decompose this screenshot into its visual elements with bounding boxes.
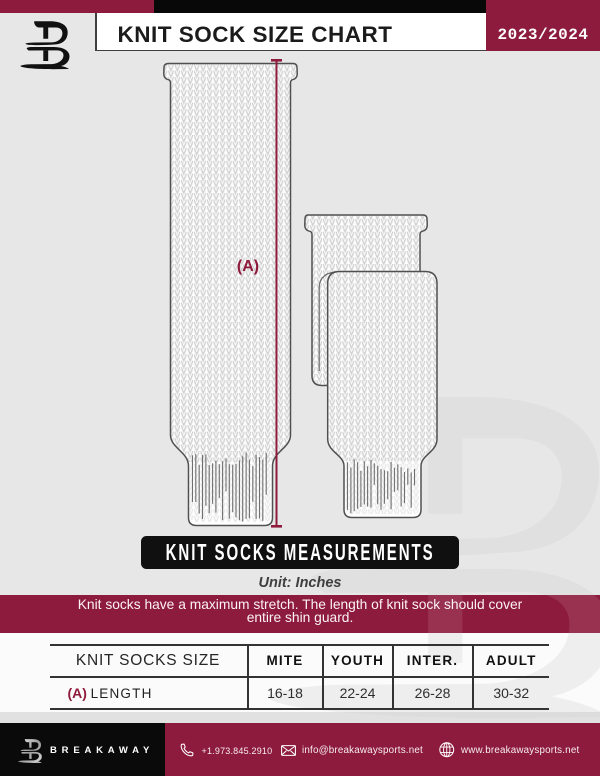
svg-text:(A): (A) [237, 258, 259, 275]
